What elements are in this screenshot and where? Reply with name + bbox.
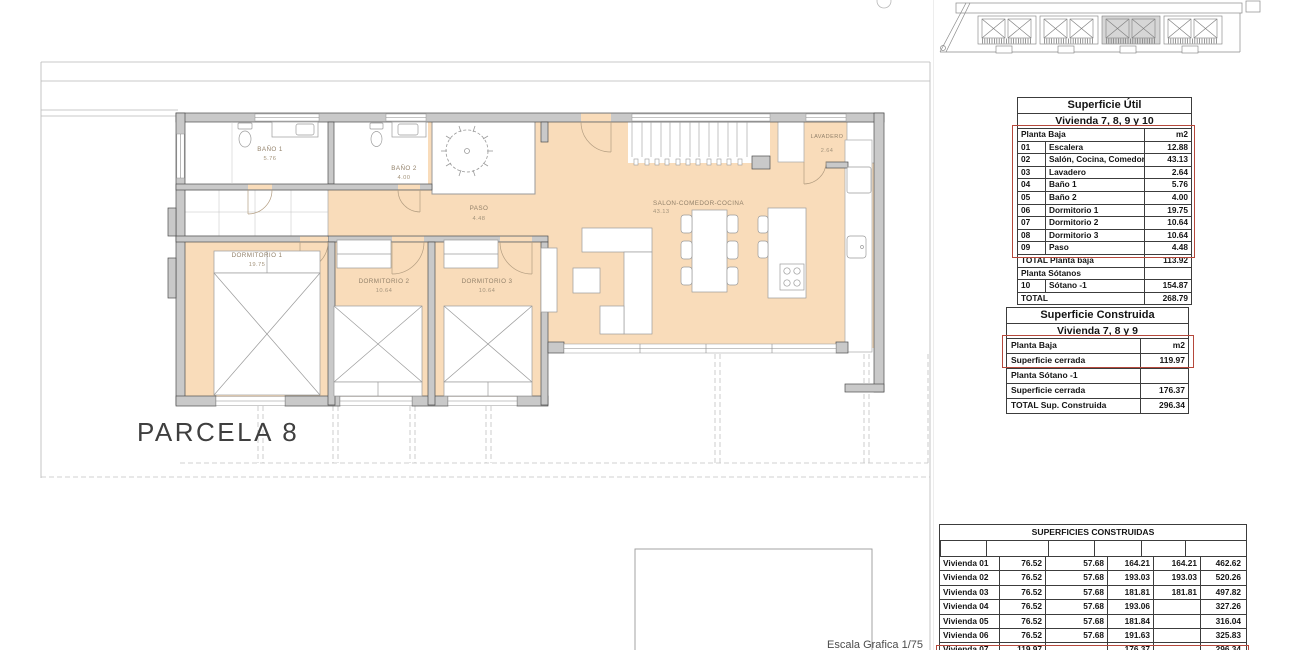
parcela-title: PARCELA 8 — [137, 417, 299, 447]
cooktop-symbol — [780, 264, 804, 290]
row-name: Vivienda 04 — [940, 600, 999, 613]
row-num: 04 — [1018, 179, 1046, 191]
cell-p-baja: 76.52 — [999, 615, 1045, 628]
room-area-bano1: 5.76 — [264, 156, 277, 162]
superficie-util-table: Superficie Útil Vivienda 7, 8, 9 y 10 Pl… — [1017, 97, 1192, 305]
table-row: 01 Escalera 12.88 — [1018, 141, 1191, 154]
table-row: Superficie cerrada 119.97 — [1007, 353, 1188, 368]
table-row: Planta Sótano -1 — [1007, 368, 1188, 383]
cell-p-baja: 76.52 — [999, 571, 1045, 584]
bed-dormitorio-2 — [334, 306, 422, 396]
toilet-symbol-bano1 — [238, 123, 252, 147]
cell-sotano-1: 193.03 — [1107, 571, 1153, 584]
row-value: 5.76 — [1144, 179, 1191, 191]
table-row: 03 Lavadero 2.64 — [1018, 166, 1191, 179]
cell-total: 316.04 — [1200, 615, 1244, 628]
cell-sotano-1: 191.63 — [1107, 629, 1153, 642]
closet-dormitorio-2 — [337, 240, 391, 268]
table-row: Superficie cerrada 176.37 — [1007, 383, 1188, 398]
cell-p-baja: 76.52 — [999, 557, 1045, 570]
row-value: 268.79 — [1144, 293, 1191, 305]
table-row: Vivienda 01 76.52 57.68 164.21 164.21 46… — [940, 556, 1246, 570]
table-row: 05 Baño 2 4.00 — [1018, 191, 1191, 204]
row-label: Dormitorio 1 — [1046, 205, 1144, 217]
row-label: Superficie cerrada — [1007, 354, 1140, 368]
table-row: 04 Baño 1 5.76 — [1018, 178, 1191, 191]
site-unit-3-highlighted — [1102, 16, 1160, 53]
room-label-paso: PASO — [470, 205, 489, 212]
dining-set — [681, 210, 738, 292]
table-subtitle: Vivienda 7, 8, 9 y 10 — [1018, 114, 1191, 128]
row-num: 05 — [1018, 192, 1046, 204]
cell-p-primera: 57.68 — [1045, 615, 1107, 628]
row-value: 12.88 — [1144, 142, 1191, 154]
room-label-dorm2: DORMITORIO 2 — [359, 278, 410, 285]
row-num: 06 — [1018, 205, 1046, 217]
cell-p-baja: 76.52 — [999, 629, 1045, 642]
row-label: Baño 1 — [1046, 179, 1144, 191]
row-label: Baño 2 — [1046, 192, 1144, 204]
toilet-symbol-bano2 — [370, 123, 383, 147]
row-value: 2.64 — [1144, 167, 1191, 179]
row-num: 03 — [1018, 167, 1046, 179]
table-row: Vivienda 07 119.97 176.37 296.34 — [940, 642, 1246, 650]
row-label: Salón, Cocina, Comedor — [1046, 154, 1144, 166]
room-area-dorm1: 19.75 — [249, 262, 266, 268]
scale-note: Escala Grafica 1/75 — [827, 639, 923, 650]
table-row: 02 Salón, Cocina, Comedor 43.13 — [1018, 153, 1191, 166]
site-key-plan — [938, 0, 1291, 58]
table-row: Vivienda 04 76.52 57.68 193.06 327.26 — [940, 599, 1246, 613]
superficie-construida-table: Superficie Construida Vivienda 7, 8 y 9 … — [1006, 307, 1189, 414]
table-body: Vivienda 01 76.52 57.68 164.21 164.21 46… — [940, 556, 1246, 650]
column-header — [1048, 541, 1094, 556]
row-label: TOTAL Planta baja — [1018, 255, 1144, 267]
room-area-lavadero: 2.64 — [821, 148, 834, 154]
row-value — [1144, 268, 1191, 280]
column-header — [1185, 541, 1186, 556]
room-label-dorm3: DORMITORIO 3 — [462, 278, 513, 285]
cell-p-primera: 57.68 — [1045, 557, 1107, 570]
column-header — [940, 541, 986, 556]
cell-total: 325.83 — [1200, 629, 1244, 642]
table-header-row — [940, 541, 1246, 556]
row-value — [1140, 369, 1188, 383]
cell-total: 497.82 — [1200, 586, 1244, 599]
cell-sotano-2 — [1153, 643, 1200, 650]
closet-dormitorio-3 — [444, 240, 498, 268]
table-row: Vivienda 02 76.52 57.68 193.03 193.03 52… — [940, 570, 1246, 584]
row-label: Escalera — [1046, 142, 1144, 154]
table-row: 06 Dormitorio 1 19.75 — [1018, 204, 1191, 217]
cell-sotano-1: 181.81 — [1107, 586, 1153, 599]
cell-p-primera: 57.68 — [1045, 629, 1107, 642]
cell-sotano-1: 164.21 — [1107, 557, 1153, 570]
cell-total: 327.26 — [1200, 600, 1244, 613]
row-label: Dormitorio 2 — [1046, 217, 1144, 229]
room-area-paso: 4.48 — [473, 216, 486, 222]
cell-p-baja: 76.52 — [999, 600, 1045, 613]
row-name: Vivienda 07 — [940, 643, 999, 650]
table-row: TOTAL Sup. Construida 296.34 — [1007, 398, 1188, 413]
cell-p-baja: 76.52 — [999, 586, 1045, 599]
cell-sotano-1: 181.84 — [1107, 615, 1153, 628]
cell-sotano-2 — [1153, 615, 1200, 628]
table-title: Superficie Útil — [1018, 98, 1191, 114]
site-unit-1 — [978, 16, 1036, 53]
table-title: SUPERFICIES CONSTRUIDAS — [940, 525, 1246, 541]
lavadero-closet-left — [778, 121, 804, 162]
floor-plan-drawing: BAÑO 1 5.76 BAÑO 2 4.00 PASO 4.48 LAVADE… — [0, 0, 940, 650]
table-row: Vivienda 05 76.52 57.68 181.84 316.04 — [940, 614, 1246, 628]
coffee-table — [573, 268, 600, 293]
cell-total: 462.62 — [1200, 557, 1244, 570]
cell-p-primera: 57.68 — [1045, 600, 1107, 613]
courtyard — [432, 117, 535, 194]
column-header — [1094, 541, 1141, 556]
cell-sotano-2 — [1153, 629, 1200, 642]
row-num: 01 — [1018, 142, 1046, 154]
row-value: 296.34 — [1140, 399, 1188, 413]
row-value: 113.92 — [1144, 255, 1191, 267]
table-row: TOTAL Planta baja 113.92 — [1018, 254, 1191, 267]
site-unit-4 — [1164, 16, 1222, 53]
table-row: Planta Baja m2 — [1007, 338, 1188, 353]
cell-total: 296.34 — [1200, 643, 1244, 650]
plan-sheet: BAÑO 1 5.76 BAÑO 2 4.00 PASO 4.48 LAVADE… — [0, 0, 1291, 650]
table-row: Vivienda 06 76.52 57.68 191.63 325.83 — [940, 628, 1246, 642]
row-label: Planta Baja — [1007, 339, 1140, 353]
cell-sotano-1: 193.06 — [1107, 600, 1153, 613]
row-value: 4.00 — [1144, 192, 1191, 204]
row-value: 4.48 — [1144, 242, 1191, 254]
row-label: Superficie cerrada — [1007, 384, 1140, 398]
row-name: Vivienda 01 — [940, 557, 999, 570]
superficies-construidas-table: SUPERFICIES CONSTRUIDAS Vivienda 01 76.5… — [939, 524, 1247, 650]
table-row: 10 Sótano -1 154.87 — [1018, 279, 1191, 292]
room-area-bano2: 4.00 — [398, 175, 411, 181]
room-area-dorm2: 10.64 — [376, 288, 393, 294]
row-label: Dormitorio 3 — [1046, 230, 1144, 242]
sink-symbol-bano2 — [392, 122, 426, 137]
row-name: Vivienda 03 — [940, 586, 999, 599]
room-area-dorm3: 10.64 — [479, 288, 496, 294]
cell-sotano-2: 164.21 — [1153, 557, 1200, 570]
row-num: 07 — [1018, 217, 1046, 229]
kitchen-sink-symbol — [847, 236, 866, 258]
room-label-bano1: BAÑO 1 — [257, 144, 283, 153]
cell-sotano-1: 176.37 — [1107, 643, 1153, 650]
row-num: 08 — [1018, 230, 1046, 242]
row-value: 154.87 — [1144, 280, 1191, 292]
table-row: TOTAL 268.79 — [1018, 292, 1191, 305]
room-label-dorm1: DORMITORIO 1 — [232, 252, 283, 259]
table-body: Planta Baja m2 Superficie cerrada 119.97… — [1007, 338, 1188, 413]
cell-p-primera: 57.68 — [1045, 571, 1107, 584]
column-header — [1141, 541, 1185, 556]
row-value: 119.97 — [1140, 354, 1188, 368]
row-label: Planta Baja — [1018, 129, 1144, 141]
row-label: Paso — [1046, 242, 1144, 254]
row-num: 02 — [1018, 154, 1046, 166]
table-body: Planta Baja m2 01 Escalera 12.88 02 Saló… — [1018, 128, 1191, 304]
row-num: 09 — [1018, 242, 1046, 254]
row-label: TOTAL Sup. Construida — [1007, 399, 1140, 413]
cell-sotano-2: 193.03 — [1153, 571, 1200, 584]
table-row: 09 Paso 4.48 — [1018, 241, 1191, 254]
row-value: m2 — [1144, 129, 1191, 141]
row-name: Vivienda 06 — [940, 629, 999, 642]
row-label: Lavadero — [1046, 167, 1144, 179]
cell-p-primera — [1045, 643, 1107, 650]
table-row: Planta Sótanos — [1018, 267, 1191, 280]
table-row: 07 Dormitorio 2 10.64 — [1018, 216, 1191, 229]
bed-dormitorio-1 — [214, 251, 320, 395]
cell-sotano-2 — [1153, 600, 1200, 613]
bed-dormitorio-3 — [444, 306, 532, 396]
row-value: 10.64 — [1144, 230, 1191, 242]
row-value: m2 — [1140, 339, 1188, 353]
row-label: Planta Sótano -1 — [1007, 369, 1140, 383]
table-row: Planta Baja m2 — [1018, 128, 1191, 141]
site-unit-2 — [1040, 16, 1098, 53]
row-value: 43.13 — [1144, 154, 1191, 166]
room-label-lavadero: LAVADERO — [811, 134, 844, 140]
room-area-salon: 43.13 — [653, 209, 670, 215]
sheet-divider — [933, 0, 934, 650]
row-value: 19.75 — [1144, 205, 1191, 217]
row-num: 10 — [1018, 280, 1046, 292]
row-label: Planta Sótanos — [1018, 268, 1144, 280]
tv-cabinet — [541, 248, 557, 312]
fridge-symbol — [847, 167, 871, 193]
pool-outline — [635, 549, 872, 650]
table-row: Vivienda 03 76.52 57.68 181.81 181.81 49… — [940, 585, 1246, 599]
table-row: 08 Dormitorio 3 10.64 — [1018, 229, 1191, 242]
row-value: 10.64 — [1144, 217, 1191, 229]
table-subtitle: Vivienda 7, 8 y 9 — [1007, 324, 1188, 338]
row-name: Vivienda 05 — [940, 615, 999, 628]
room-label-bano2: BAÑO 2 — [391, 163, 417, 172]
cell-p-primera: 57.68 — [1045, 586, 1107, 599]
cell-p-baja: 119.97 — [999, 643, 1045, 650]
row-value: 176.37 — [1140, 384, 1188, 398]
row-label: Sótano -1 — [1046, 280, 1144, 292]
north-symbol-partial — [877, 0, 891, 8]
sink-symbol-bano1 — [272, 122, 318, 137]
room-label-salon: SALON-COMEDOR-COCINA — [653, 200, 744, 207]
cell-total: 520.26 — [1200, 571, 1244, 584]
cell-sotano-2: 181.81 — [1153, 586, 1200, 599]
row-name: Vivienda 02 — [940, 571, 999, 584]
table-title: Superficie Construida — [1007, 308, 1188, 324]
column-header — [986, 541, 1048, 556]
row-label: TOTAL — [1018, 293, 1144, 305]
